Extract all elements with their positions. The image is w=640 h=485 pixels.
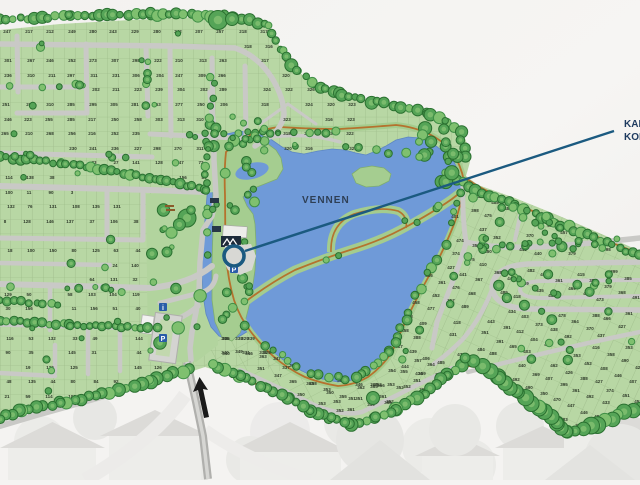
svg-text:207: 207 (195, 29, 203, 34)
svg-text:320: 320 (284, 146, 292, 151)
svg-text:256: 256 (68, 131, 76, 136)
svg-text:90: 90 (48, 190, 54, 195)
svg-text:P: P (161, 336, 166, 343)
svg-text:427: 427 (595, 379, 603, 384)
svg-text:373: 373 (535, 322, 543, 327)
svg-text:352: 352 (396, 385, 404, 390)
svg-text:350: 350 (297, 392, 305, 397)
svg-text:114: 114 (5, 175, 13, 180)
svg-text:64: 64 (89, 277, 95, 282)
svg-text:367: 367 (475, 277, 483, 282)
svg-text:426: 426 (565, 370, 573, 375)
svg-text:140: 140 (131, 263, 139, 268)
svg-text:265: 265 (1, 131, 9, 136)
svg-text:218: 218 (239, 29, 247, 34)
svg-text:490: 490 (621, 358, 629, 363)
svg-text:270: 270 (174, 146, 182, 151)
svg-text:128: 128 (23, 219, 31, 224)
svg-text:462: 462 (550, 363, 558, 368)
svg-text:216: 216 (88, 131, 96, 136)
svg-text:484: 484 (477, 347, 485, 352)
svg-text:129: 129 (4, 292, 12, 297)
svg-text:249: 249 (68, 29, 76, 34)
svg-text:141: 141 (132, 160, 140, 165)
svg-text:227: 227 (134, 146, 142, 151)
svg-text:351: 351 (355, 396, 363, 401)
svg-text:250: 250 (197, 102, 205, 107)
svg-text:263: 263 (219, 58, 227, 63)
svg-text:252: 252 (111, 131, 119, 136)
svg-text:323: 323 (283, 117, 291, 122)
svg-text:322: 322 (285, 87, 293, 92)
svg-text:128: 128 (155, 160, 163, 165)
svg-text:84: 84 (93, 379, 99, 384)
svg-text:KAMPEER: KAMPEER (624, 119, 640, 130)
svg-text:21: 21 (4, 394, 10, 399)
svg-text:38: 38 (49, 175, 55, 180)
svg-text:311: 311 (90, 73, 98, 78)
svg-text:31: 31 (91, 350, 97, 355)
svg-text:230: 230 (69, 146, 77, 151)
svg-text:243: 243 (109, 29, 117, 34)
svg-text:489: 489 (461, 304, 469, 309)
svg-text:222: 222 (154, 58, 162, 63)
svg-text:351: 351 (348, 396, 356, 401)
svg-text:338: 338 (235, 336, 243, 341)
svg-text:452: 452 (432, 293, 440, 298)
svg-text:145: 145 (134, 365, 142, 370)
svg-text:KOMPAS: KOMPAS (624, 132, 640, 143)
svg-text:374: 374 (606, 388, 614, 393)
svg-text:306: 306 (132, 73, 140, 78)
svg-text:137: 137 (66, 219, 74, 224)
svg-text:316: 316 (305, 146, 313, 151)
svg-text:491: 491 (632, 295, 640, 300)
svg-text:80: 80 (71, 248, 77, 253)
svg-text:437: 437 (479, 227, 487, 232)
svg-text:145: 145 (68, 350, 76, 355)
svg-text:388: 388 (592, 313, 600, 318)
svg-text:318: 318 (244, 44, 252, 49)
svg-text:119: 119 (132, 292, 140, 297)
svg-text:206: 206 (220, 102, 228, 107)
svg-text:477: 477 (427, 306, 435, 311)
svg-text:427: 427 (447, 265, 455, 270)
svg-text:135: 135 (92, 204, 100, 209)
svg-text:18: 18 (7, 248, 13, 253)
svg-text:440: 440 (534, 251, 542, 256)
svg-text:485: 485 (437, 360, 445, 365)
svg-text:404: 404 (530, 337, 538, 342)
svg-text:438: 438 (550, 327, 558, 332)
svg-text:317: 317 (261, 58, 269, 63)
svg-text:433: 433 (602, 400, 610, 405)
svg-text:204: 204 (156, 73, 164, 78)
svg-text:285: 285 (67, 102, 75, 107)
svg-text:370: 370 (586, 326, 594, 331)
svg-text:408: 408 (600, 366, 608, 371)
svg-text:132: 132 (48, 336, 56, 341)
svg-text:492: 492 (564, 334, 572, 339)
svg-text:53: 53 (28, 336, 34, 341)
svg-text:351: 351 (481, 330, 489, 335)
svg-text:90: 90 (5, 350, 11, 355)
svg-text:340: 340 (222, 351, 230, 356)
svg-text:350: 350 (540, 391, 548, 396)
svg-text:49: 49 (92, 336, 98, 341)
svg-text:353: 353 (625, 345, 633, 350)
svg-text:361: 361 (555, 278, 563, 283)
svg-text:223: 223 (24, 117, 32, 122)
svg-text:365: 365 (289, 379, 297, 384)
svg-text:266: 266 (218, 73, 226, 78)
svg-text:307: 307 (111, 58, 119, 63)
svg-text:11: 11 (72, 306, 77, 311)
svg-text:303: 303 (155, 117, 163, 122)
svg-text:48: 48 (6, 379, 12, 384)
svg-text:451: 451 (622, 393, 630, 398)
svg-text:277: 277 (175, 102, 183, 107)
svg-text:323: 323 (348, 102, 356, 107)
svg-text:285: 285 (67, 117, 75, 122)
svg-text:311: 311 (196, 146, 204, 151)
svg-text:280: 280 (89, 29, 97, 34)
svg-text:44: 44 (135, 248, 141, 253)
svg-text:267: 267 (27, 58, 35, 63)
svg-text:353: 353 (573, 353, 581, 358)
svg-text:427: 427 (618, 324, 626, 329)
svg-text:379: 379 (604, 284, 612, 289)
svg-text:415: 415 (577, 272, 585, 277)
svg-text:368: 368 (618, 290, 626, 295)
svg-text:100: 100 (5, 190, 13, 195)
svg-text:150: 150 (49, 248, 57, 253)
svg-text:357: 357 (414, 358, 422, 363)
svg-text:38: 38 (133, 219, 139, 224)
svg-text:211: 211 (48, 73, 56, 78)
svg-text:VENNEN: VENNEN (302, 195, 350, 206)
svg-text:304: 304 (177, 87, 185, 92)
svg-text:391: 391 (503, 325, 511, 330)
svg-text:131: 131 (113, 204, 121, 209)
svg-text:37: 37 (89, 219, 95, 224)
svg-text:76: 76 (27, 204, 33, 209)
svg-text:156: 156 (90, 306, 98, 311)
svg-text:441: 441 (459, 272, 467, 277)
svg-text:407: 407 (629, 379, 637, 384)
svg-text:352: 352 (493, 235, 501, 240)
svg-text:125: 125 (92, 248, 100, 253)
svg-text:446: 446 (580, 410, 588, 415)
svg-text:320: 320 (282, 73, 290, 78)
svg-text:258: 258 (134, 117, 142, 122)
svg-text:322: 322 (346, 131, 354, 136)
svg-text:353: 353 (318, 401, 326, 406)
svg-text:406: 406 (422, 356, 430, 361)
svg-text:488: 488 (489, 351, 497, 356)
svg-text:211: 211 (112, 87, 120, 92)
svg-text:440: 440 (518, 363, 526, 368)
svg-text:320: 320 (327, 102, 335, 107)
svg-text:236: 236 (4, 73, 12, 78)
svg-text:310: 310 (27, 73, 35, 78)
svg-text:339: 339 (247, 336, 255, 341)
svg-text:439: 439 (409, 349, 417, 354)
svg-text:358: 358 (607, 352, 615, 357)
svg-text:63: 63 (113, 248, 119, 253)
svg-text:313: 313 (177, 117, 185, 122)
svg-text:212: 212 (46, 29, 54, 34)
svg-text:146: 146 (46, 219, 54, 224)
svg-text:247: 247 (3, 29, 11, 34)
svg-text:202: 202 (200, 87, 208, 92)
svg-text:476: 476 (452, 285, 460, 290)
svg-text:138: 138 (26, 175, 34, 180)
svg-text:246: 246 (46, 58, 54, 63)
svg-text:51: 51 (112, 306, 118, 311)
svg-text:407: 407 (545, 376, 553, 381)
svg-text:354: 354 (388, 368, 396, 373)
svg-text:388: 388 (413, 335, 421, 340)
svg-text:235: 235 (132, 131, 140, 136)
svg-text:313: 313 (199, 58, 207, 63)
svg-text:434: 434 (508, 309, 516, 314)
svg-text:i: i (162, 305, 164, 312)
svg-text:353: 353 (387, 382, 395, 387)
svg-text:59: 59 (25, 394, 31, 399)
svg-text:297: 297 (67, 73, 75, 78)
svg-text:202: 202 (92, 87, 100, 92)
svg-text:114: 114 (45, 394, 53, 399)
svg-text:358: 358 (309, 381, 317, 386)
svg-text:351: 351 (257, 366, 265, 371)
svg-text:369: 369 (532, 372, 540, 377)
svg-text:229: 229 (131, 29, 139, 34)
svg-text:352: 352 (336, 408, 344, 413)
svg-text:452: 452 (584, 361, 592, 366)
svg-text:35: 35 (28, 350, 34, 355)
svg-text:447: 447 (567, 403, 575, 408)
svg-text:131: 131 (110, 277, 118, 282)
svg-text:251: 251 (2, 102, 10, 107)
svg-text:250: 250 (111, 117, 119, 122)
svg-text:116: 116 (6, 336, 14, 341)
svg-text:132: 132 (7, 204, 15, 209)
svg-text:106: 106 (110, 219, 118, 224)
svg-text:492: 492 (586, 394, 594, 399)
svg-text:131: 131 (49, 204, 57, 209)
svg-text:30: 30 (5, 306, 11, 311)
svg-text:19: 19 (25, 365, 31, 370)
svg-text:301: 301 (4, 58, 12, 63)
svg-text:268: 268 (46, 131, 54, 136)
svg-text:125: 125 (70, 365, 78, 370)
svg-text:364: 364 (571, 319, 579, 324)
svg-text:346: 346 (245, 351, 253, 356)
svg-text:361: 361 (572, 388, 580, 393)
svg-text:398: 398 (471, 208, 479, 213)
svg-text:100: 100 (27, 248, 35, 253)
svg-text:336: 336 (259, 350, 267, 355)
svg-text:310: 310 (46, 102, 54, 107)
svg-text:246: 246 (4, 117, 12, 122)
svg-text:281: 281 (131, 102, 139, 107)
svg-text:255: 255 (45, 117, 53, 122)
svg-text:11: 11 (27, 190, 32, 195)
svg-text:361: 361 (625, 311, 633, 316)
svg-text:108: 108 (72, 204, 80, 209)
svg-text:352: 352 (403, 384, 411, 389)
svg-text:289: 289 (219, 87, 227, 92)
svg-text:32: 32 (132, 277, 138, 282)
svg-text:355: 355 (339, 394, 347, 399)
svg-text:103: 103 (88, 292, 96, 297)
svg-text:217: 217 (25, 29, 33, 34)
svg-text:416: 416 (592, 345, 600, 350)
svg-text:347: 347 (274, 373, 282, 378)
svg-text:40: 40 (135, 306, 141, 311)
svg-text:44: 44 (50, 379, 56, 384)
svg-text:323: 323 (347, 117, 355, 122)
svg-text:135: 135 (28, 379, 36, 384)
svg-text:210: 210 (175, 58, 183, 63)
svg-text:351: 351 (413, 378, 421, 383)
svg-text:482: 482 (527, 268, 535, 273)
svg-text:324: 324 (263, 87, 271, 92)
svg-text:231: 231 (112, 73, 120, 78)
svg-text:470: 470 (553, 397, 561, 402)
svg-text:350: 350 (326, 390, 334, 395)
svg-text:58: 58 (67, 292, 73, 297)
svg-text:412: 412 (516, 329, 524, 334)
svg-text:361: 361 (347, 407, 355, 412)
svg-text:418: 418 (453, 320, 461, 325)
svg-text:385: 385 (624, 276, 632, 281)
svg-text:475: 475 (484, 213, 492, 218)
svg-text:409: 409 (419, 321, 427, 326)
svg-text:210: 210 (25, 131, 33, 136)
svg-text:366: 366 (377, 383, 385, 388)
svg-text:33: 33 (72, 336, 78, 341)
svg-text:252: 252 (68, 58, 76, 63)
svg-text:349: 349 (235, 349, 243, 354)
svg-text:217: 217 (88, 117, 96, 122)
svg-text:305: 305 (110, 102, 118, 107)
svg-text:468: 468 (468, 291, 476, 296)
svg-text:44: 44 (136, 350, 142, 355)
svg-text:410: 410 (479, 262, 487, 267)
svg-text:316: 316 (265, 44, 273, 49)
svg-text:421: 421 (635, 365, 640, 370)
svg-text:310: 310 (196, 117, 204, 122)
svg-text:144: 144 (135, 336, 143, 341)
svg-text:P: P (232, 267, 237, 274)
svg-text:295: 295 (89, 102, 97, 107)
svg-text:223: 223 (134, 87, 142, 92)
svg-text:431: 431 (449, 332, 457, 337)
svg-text:364: 364 (370, 382, 378, 387)
svg-text:446: 446 (614, 373, 622, 378)
svg-text:492: 492 (512, 377, 520, 382)
svg-text:418: 418 (513, 294, 521, 299)
svg-text:50: 50 (26, 292, 32, 297)
svg-text:318: 318 (261, 102, 269, 107)
svg-text:437: 437 (597, 333, 605, 338)
svg-text:391: 391 (496, 339, 504, 344)
svg-text:126: 126 (154, 365, 162, 370)
svg-text:247: 247 (175, 73, 183, 78)
svg-text:465: 465 (509, 344, 517, 349)
svg-text:298: 298 (153, 146, 161, 151)
svg-text:395: 395 (560, 382, 568, 387)
svg-text:309: 309 (198, 73, 206, 78)
svg-text:443: 443 (487, 319, 495, 324)
svg-text:361: 361 (379, 394, 387, 399)
svg-text:473: 473 (596, 297, 604, 302)
svg-text:355: 355 (400, 369, 408, 374)
svg-text:362: 362 (357, 385, 365, 390)
svg-text:370: 370 (526, 233, 534, 238)
svg-text:388: 388 (580, 376, 588, 381)
svg-text:324: 324 (305, 102, 313, 107)
svg-text:353: 353 (333, 399, 341, 404)
svg-text:241: 241 (89, 146, 97, 151)
svg-text:80: 80 (70, 379, 76, 384)
svg-text:273: 273 (89, 58, 97, 63)
svg-text:374: 374 (452, 251, 460, 256)
svg-text:239: 239 (155, 87, 163, 92)
svg-text:359: 359 (418, 371, 426, 376)
svg-text:478: 478 (558, 313, 566, 318)
svg-text:336: 336 (222, 336, 230, 341)
svg-text:24: 24 (112, 263, 118, 268)
svg-text:403: 403 (521, 314, 529, 319)
svg-text:236: 236 (111, 146, 119, 151)
svg-text:364: 364 (427, 362, 435, 367)
svg-text:458: 458 (412, 300, 420, 305)
svg-text:280: 280 (153, 29, 161, 34)
svg-text:316: 316 (325, 117, 333, 122)
svg-text:474: 474 (456, 238, 464, 243)
svg-text:466: 466 (603, 316, 611, 321)
svg-text:361: 361 (438, 280, 446, 285)
